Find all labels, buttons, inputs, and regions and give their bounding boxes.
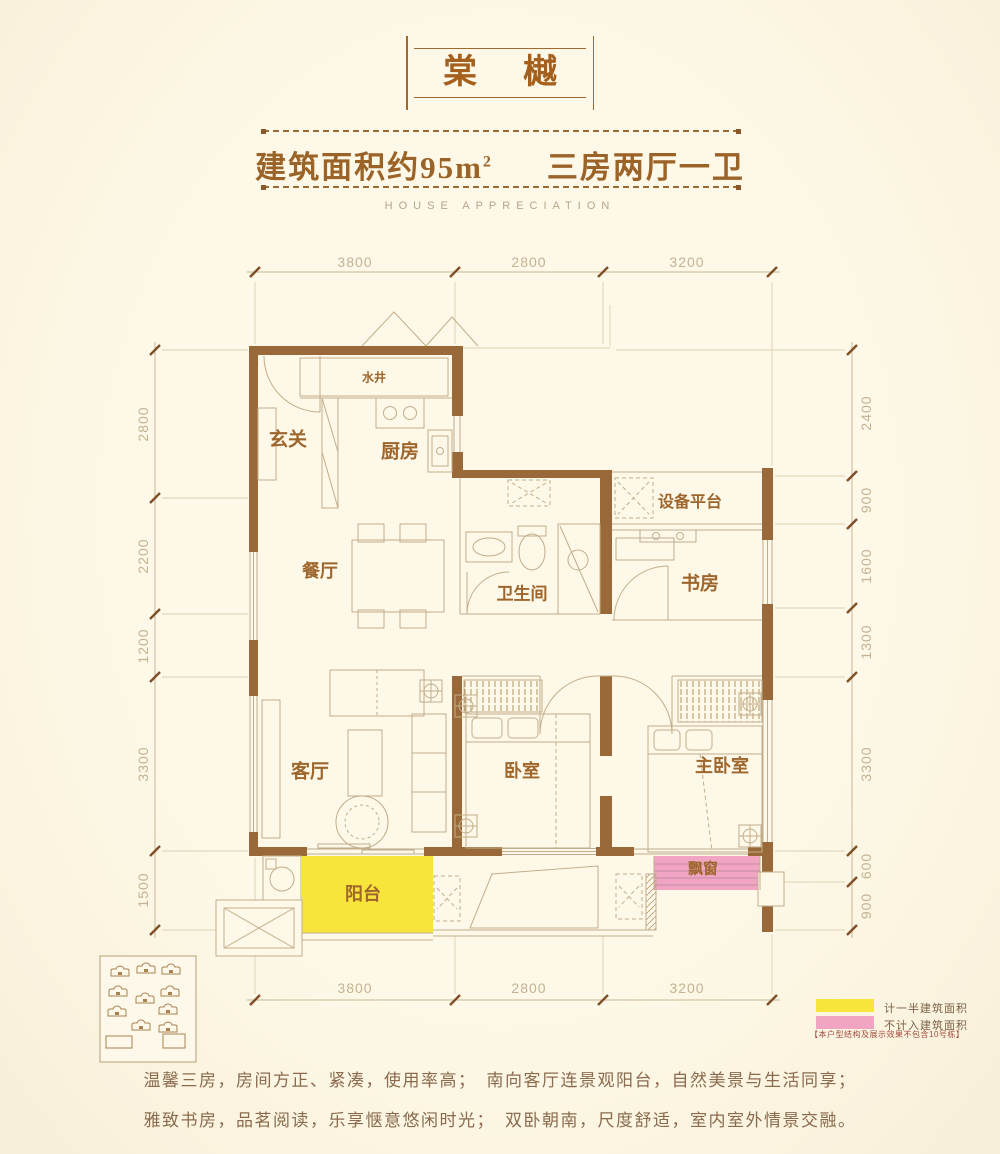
dim-bottom-1: 3800 (337, 980, 372, 996)
legend-label-half-area: 计一半建筑面积 (884, 1000, 968, 1016)
key-plan-icon (100, 956, 196, 1062)
dim-right-7: 900 (858, 893, 874, 919)
dim-right-2: 900 (858, 487, 874, 513)
dim-right-6: 600 (858, 853, 874, 879)
dim-right-5: 3300 (858, 746, 874, 781)
dim-left-4: 3300 (135, 746, 151, 781)
dim-right-3: 1600 (858, 548, 874, 583)
dim-left-2: 2200 (135, 538, 151, 573)
dim-left-5: 1500 (135, 872, 151, 907)
floor-plan-graphic (0, 0, 1000, 1154)
room-label-water-shaft: 水井 (362, 369, 386, 386)
dim-left-1: 2800 (135, 406, 151, 441)
dim-right-1: 2400 (858, 395, 874, 430)
windows (249, 416, 773, 856)
dim-bottom-3: 3200 (669, 980, 704, 996)
floorplan-poster: 棠樾 建筑面积约95m2三房两厅一卫 HOUSE APPRECIATION (0, 0, 1000, 1154)
dim-top-1: 3800 (337, 254, 372, 270)
dim-left-3: 1200 (135, 628, 151, 663)
room-label-bay-window: 飘窗 (688, 858, 718, 879)
room-label-bedroom: 卧室 (504, 757, 540, 783)
room-label-balcony: 阳台 (345, 880, 381, 906)
dim-top-3: 3200 (669, 254, 704, 270)
legend-swatch-half-area (816, 999, 874, 1012)
room-label-master-bedroom: 主卧室 (695, 752, 749, 778)
room-label-living: 客厅 (291, 757, 329, 784)
dim-bottom-2: 2800 (511, 980, 546, 996)
dim-top-2: 2800 (511, 254, 546, 270)
room-label-dining: 餐厅 (302, 557, 338, 583)
legend-note: 【本户型结构及展示效果不包含10号栋】 (810, 1029, 964, 1040)
room-label-equipment-platform: 设备平台 (658, 488, 722, 512)
room-label-entrance: 玄关 (269, 425, 307, 452)
dim-right-4: 1300 (858, 624, 874, 659)
room-label-study: 书房 (681, 569, 719, 596)
description-line-2: 雅致书房，品茗阅读，乐享惬意悠闲时光； 双卧朝南，尺度舒适，室内室外情景交融。 (0, 1106, 1000, 1131)
room-label-kitchen: 厨房 (381, 437, 419, 464)
legend-swatch-excluded (816, 1016, 874, 1029)
room-label-bathroom: 卫生间 (497, 580, 548, 605)
dimension-lines (155, 272, 852, 1000)
description-line-1: 温馨三房，房间方正、紧凑，使用率高； 南向客厅连景观阳台，自然美景与生活同享； (0, 1066, 1000, 1091)
